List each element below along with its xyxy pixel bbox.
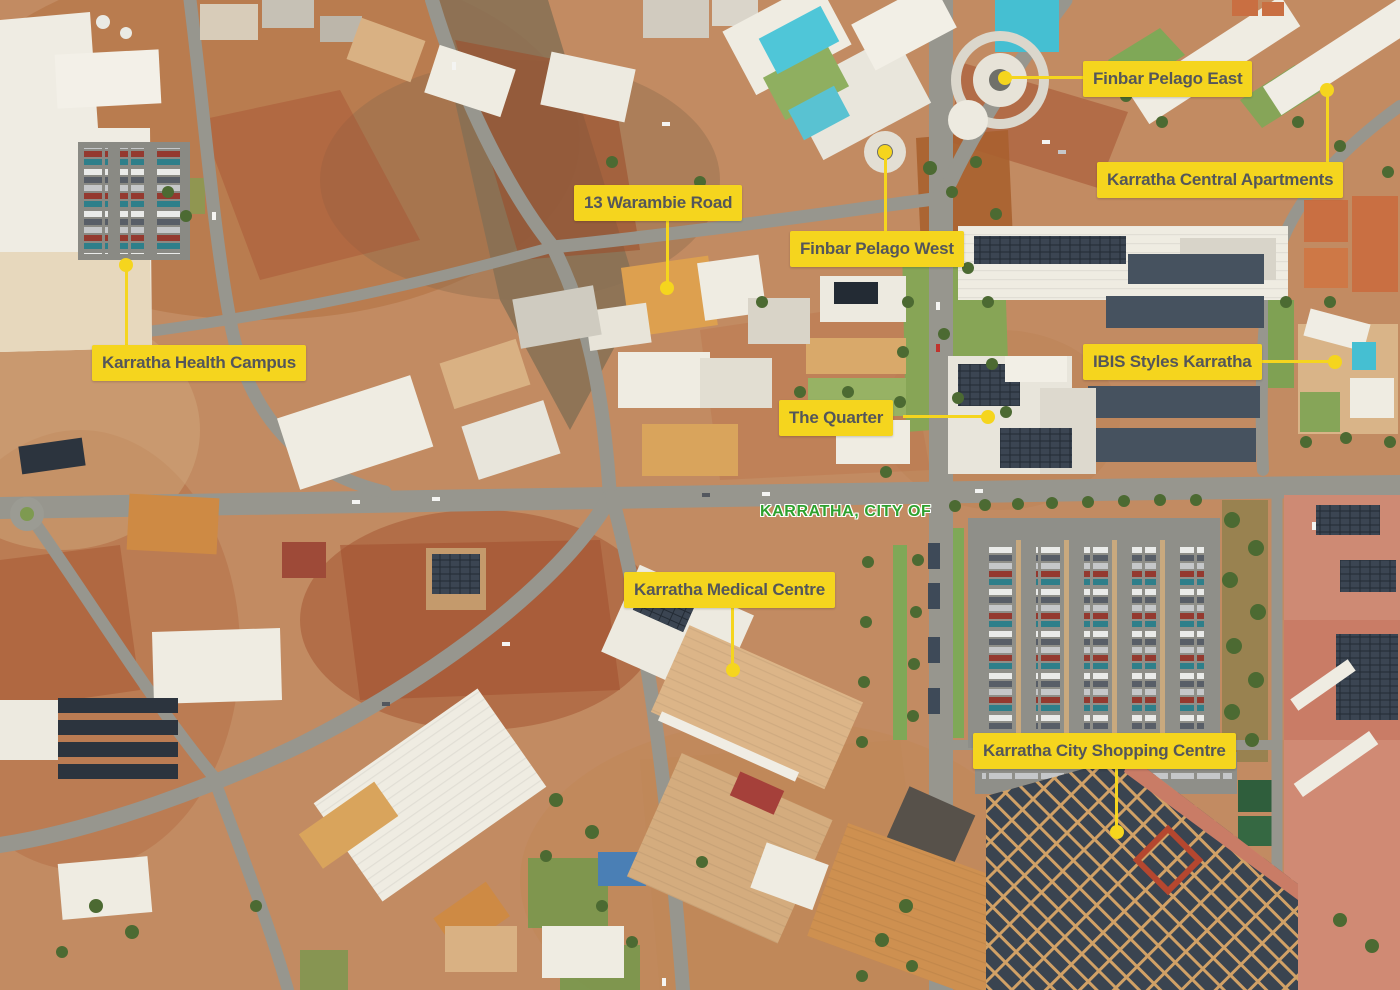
leader-line: [1326, 90, 1329, 162]
map-place-label: KARRATHA, CITY OF: [760, 503, 931, 521]
leader-line: [884, 152, 887, 232]
leader-line: [1115, 764, 1118, 830]
leader-line: [1005, 76, 1085, 79]
leader-dot: [981, 410, 995, 424]
leader-dot: [1320, 83, 1334, 97]
leader-dot: [119, 258, 133, 272]
satellite-imagery: [0, 0, 1400, 990]
leader-dot: [878, 145, 892, 159]
map-label-karratha-health-campus: Karratha Health Campus: [92, 345, 306, 381]
map-label-karratha-city-shopping-centre: Karratha City Shopping Centre: [973, 733, 1236, 769]
map-label-the-quarter: The Quarter: [779, 400, 893, 436]
leader-line: [731, 605, 734, 667]
map-label-ibis-styles-karratha: IBIS Styles Karratha: [1083, 344, 1262, 380]
map-label-13-warambie-road: 13 Warambie Road: [574, 185, 742, 221]
leader-line: [666, 218, 669, 288]
map-label-finbar-pelago-east: Finbar Pelago East: [1083, 61, 1252, 97]
leader-dot: [1328, 355, 1342, 369]
leader-dot: [726, 663, 740, 677]
map-label-karratha-medical-centre: Karratha Medical Centre: [624, 572, 835, 608]
leader-dot: [998, 71, 1012, 85]
map-label-finbar-pelago-west: Finbar Pelago West: [790, 231, 964, 267]
karratha-aerial-map: KARRATHA, CITY OF Finbar Pelago East Kar…: [0, 0, 1400, 990]
leader-dot: [660, 281, 674, 295]
map-label-karratha-central-apartments: Karratha Central Apartments: [1097, 162, 1343, 198]
leader-line: [125, 268, 128, 346]
leader-line: [1252, 360, 1335, 363]
leader-dot: [1110, 825, 1124, 839]
leader-line: [903, 415, 985, 418]
